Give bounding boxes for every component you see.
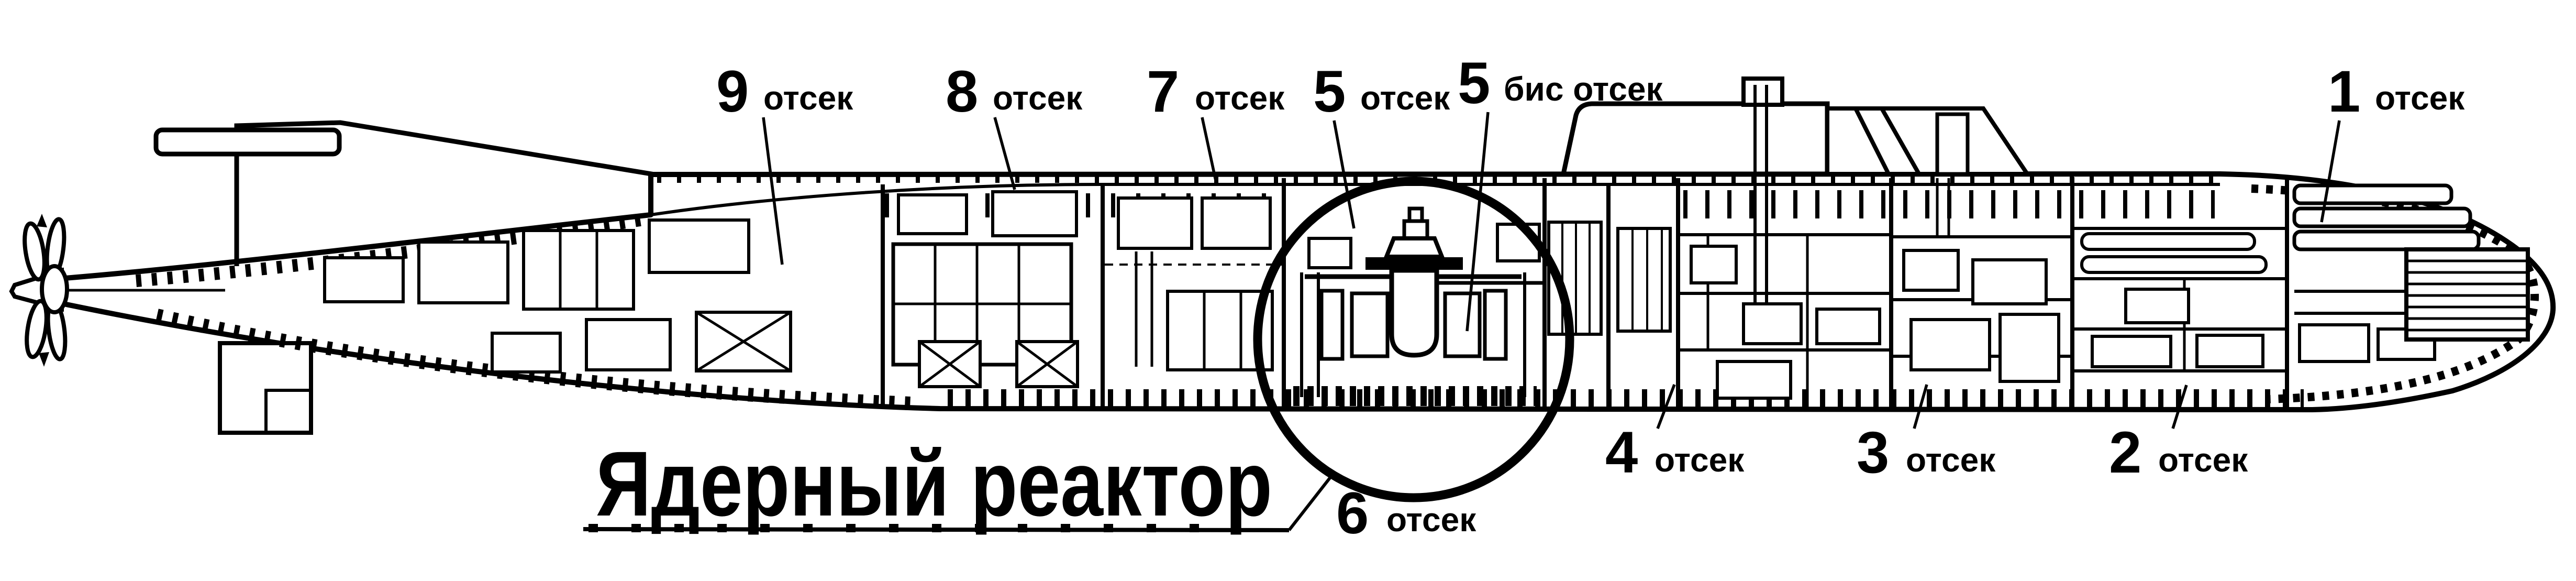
compartment-word: отсек xyxy=(1386,501,1476,539)
machinery-box xyxy=(1911,320,1990,370)
compartment-number: 8 xyxy=(946,59,978,124)
compartment-number: 1 xyxy=(2328,59,2360,124)
machinery-box xyxy=(1744,304,1801,344)
machinery-box xyxy=(1817,309,1880,344)
machinery-box xyxy=(1904,250,1958,290)
torpedo-tube xyxy=(2294,209,2470,226)
compartment-word: отсек xyxy=(2158,441,2248,479)
torpedo-tube xyxy=(2294,232,2479,249)
sonar-array xyxy=(2406,249,2528,339)
torpedo-tube xyxy=(2294,185,2451,203)
machinery-box xyxy=(586,320,670,370)
machinery-box xyxy=(2126,289,2189,323)
machinery-box xyxy=(993,192,1076,236)
reactor-pressure-vessel xyxy=(1392,270,1437,355)
reactor-caption: Ядерный реактор xyxy=(583,433,1334,535)
machinery-box xyxy=(492,333,560,372)
compartment-word: отсек xyxy=(1360,79,1450,117)
label-compartment-7: 7 отсек xyxy=(1147,59,1285,124)
machinery-box xyxy=(898,195,967,234)
machinery-box xyxy=(524,231,634,309)
reactor-cap xyxy=(1386,238,1442,257)
compartment-number: 5 xyxy=(1313,59,1346,124)
machinery-box xyxy=(2000,314,2059,381)
sail-body xyxy=(1563,104,1827,174)
compartment-word: отсек xyxy=(763,79,853,117)
machinery-box xyxy=(2197,335,2263,367)
steam-generator xyxy=(1485,291,1506,359)
label-compartment-8: 8 отсек xyxy=(946,59,1083,124)
sail-aft-fairing xyxy=(1827,108,2027,174)
reactor-title: Ядерный реактор xyxy=(596,433,1272,535)
machinery-box xyxy=(1717,361,1791,398)
machinery-box xyxy=(419,242,508,303)
compartment-number: 6 xyxy=(1336,480,1369,546)
label-compartment-5: 5 отсек xyxy=(1313,59,1450,124)
compartment-word: отсек xyxy=(1195,79,1285,117)
label-compartment-2: 2 отсек xyxy=(2109,420,2248,485)
machinery-box xyxy=(1309,238,1351,268)
machinery-box xyxy=(325,258,403,302)
reactor-title-pointer xyxy=(1289,473,1334,530)
compartment-word: отсек xyxy=(2375,79,2465,117)
compartment-word: отсек xyxy=(1655,441,1745,479)
label-compartment-9: 9 отсек xyxy=(716,59,853,124)
stowed-weapon-tube xyxy=(2082,257,2266,272)
machinery-box xyxy=(1118,198,1192,248)
compartment-number: 2 xyxy=(2109,420,2141,485)
machinery-box xyxy=(1691,246,1736,283)
steam-generator xyxy=(1445,293,1480,356)
diagram-canvas: Ядерный реактор 9 отсек 8 отсек 7 отсек … xyxy=(0,0,2576,581)
label-compartment-5bis: 5 бис отсек xyxy=(1458,50,1663,116)
compartment-number: 9 xyxy=(716,59,749,124)
label-compartment-3: 3 отсек xyxy=(1857,420,1996,485)
machinery-box xyxy=(2300,325,2369,361)
steam-generator xyxy=(1352,293,1387,356)
stowed-weapon-tube xyxy=(2082,234,2255,249)
propeller-blade-tip xyxy=(39,352,49,367)
compartment-word: бис отсек xyxy=(1504,70,1663,108)
propeller-blade-tip xyxy=(37,214,47,227)
propeller-hub xyxy=(42,266,67,312)
machinery-box xyxy=(649,220,749,272)
label-compartment-1: 1 отсек xyxy=(2328,59,2465,124)
sail-bridge-box xyxy=(1744,79,1782,105)
submarine-cutaway-diagram: Ядерный реактор 9 отсек 8 отсек 7 отсек … xyxy=(0,0,2576,581)
propeller-icon xyxy=(12,214,68,367)
label-compartment-4: 4 отсек xyxy=(1605,420,1745,485)
compartment-number: 7 xyxy=(1147,59,1179,124)
compartment-word: отсек xyxy=(1906,441,1996,479)
steam-generator xyxy=(1322,291,1342,359)
compartment-number: 5 xyxy=(1458,50,1490,116)
machinery-box xyxy=(2092,336,2171,367)
mast-housing xyxy=(1937,114,1968,174)
machinery-box xyxy=(1202,198,1270,248)
compartment-number: 3 xyxy=(1857,420,1889,485)
machinery-box xyxy=(1973,260,2046,304)
compartment-number: 4 xyxy=(1605,420,1638,485)
compartment-word: отсек xyxy=(993,79,1083,117)
towed-array-tube xyxy=(156,130,339,154)
